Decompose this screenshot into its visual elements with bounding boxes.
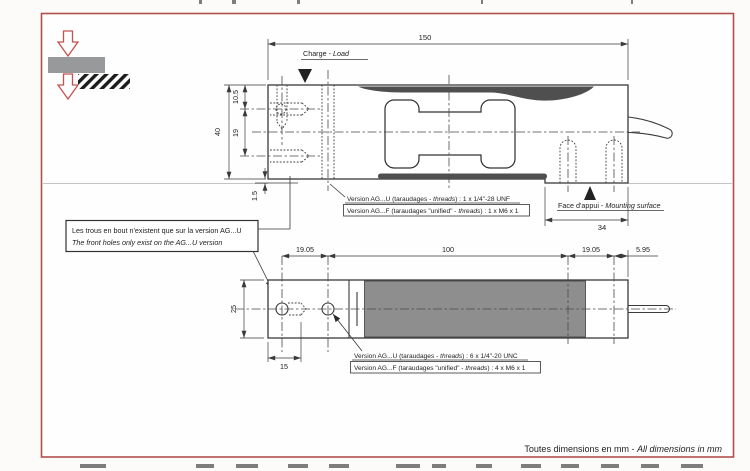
top-version-f-pre: Version AG...F (taraudages "unified" - [347,208,458,215]
side-version-u-it: threads [440,353,463,360]
side-version-u-pre: Version AG...U (taraudages - [354,353,440,360]
top-version-f-post: ) : 1 x M6 x 1 [480,208,518,215]
seal-band-bottom [378,174,547,180]
dimensions-note-sep: - [629,444,637,454]
dim-1-5: 1.5 [250,191,259,201]
dim-34: 34 [598,223,606,232]
dim-19-05-left: 19.05 [296,245,314,254]
charge-label: Charge - Load [303,49,350,58]
side-version-f: Version AG...F (taraudages "unified" - t… [354,365,526,372]
cropped-text-top [199,0,633,4]
dimensions-note-fr: Toutes dimensions en mm [524,444,629,454]
dim-10-5: 10.5 [231,90,240,104]
dim-100: 100 [442,245,454,254]
dim-25: 25 [229,305,238,313]
charge-label-fr: Charge - [303,49,333,58]
callout-en: The front holes only exist on the AG...U… [72,238,222,247]
dim-5-95: 5.95 [636,245,650,254]
beam-block [48,57,105,73]
datasheet-page: Charge - Load 150 40 10.5 19 1.5 [0,0,750,471]
cropped-text-bottom [80,464,703,468]
top-version-f-it: threads [458,208,481,215]
top-version-f: Version AG...F (taraudages "unified" - t… [347,208,519,215]
side-version-f-it: threads [465,365,488,372]
top-version-u: Version AG...U (taraudages - threads) : … [347,196,510,203]
dim-15: 15 [280,362,288,371]
dim-150: 150 [419,33,432,42]
mounting-label-fr: Face d'appui - [558,201,605,210]
technical-drawing: Charge - Load 150 40 10.5 19 1.5 [0,0,750,471]
dim-19-05-right: 19.05 [582,245,600,254]
side-version-f-post: ) : 4 x M6 x 1 [487,365,525,372]
dimensions-note-en: All dimensions in mm [636,444,723,454]
top-version-u-it: threads [433,196,456,203]
side-version-u-post: ) : 6 x 1/4"-20 UNC [462,353,518,360]
dimensions-note: Toutes dimensions en mm - All dimensions… [524,444,722,454]
charge-label-en: Load [333,49,350,58]
top-version-u-post: ) : 1 x 1/4"-28 UNF [455,196,510,203]
callout-fr: Les trous en bout n'existent que sur la … [72,226,242,235]
mounting-label: Face d'appui - Mounting surface [558,201,660,210]
side-version-u: Version AG...U (taraudages - threads) : … [354,353,518,360]
top-version-u-pre: Version AG...U (taraudages - [347,196,433,203]
dim-19: 19 [231,129,240,137]
dim-40: 40 [213,128,222,136]
ground-hatching [78,74,130,89]
side-version-f-pre: Version AG...F (taraudages "unified" - [354,365,465,372]
mounting-label-en: Mounting surface [605,201,660,210]
